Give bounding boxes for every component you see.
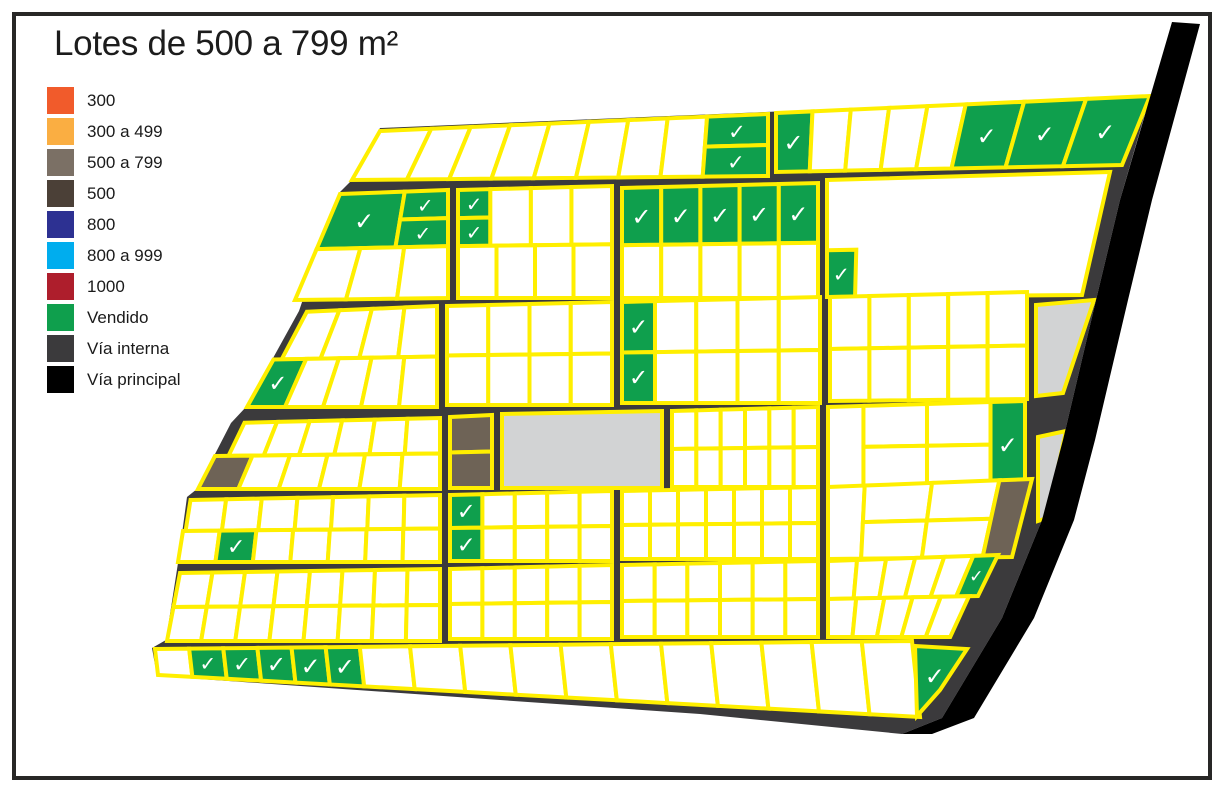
lot (762, 488, 790, 524)
lot (927, 480, 999, 520)
legend: 300300 a 499500 a 799500800800 a 9991000… (47, 87, 181, 397)
lot (574, 244, 613, 298)
sold-check-icon: ✓ (969, 567, 984, 587)
lot (482, 527, 514, 561)
lot (515, 493, 547, 528)
lot (611, 644, 668, 703)
lot (861, 520, 927, 558)
lot (745, 408, 769, 448)
sold-check-icon: ✓ (466, 193, 482, 216)
lot (687, 600, 720, 637)
lot (515, 527, 547, 561)
sold-check-icon: ✓ (267, 653, 286, 679)
lot (769, 408, 793, 448)
sold-check-icon: ✓ (788, 200, 808, 228)
lot (547, 492, 579, 527)
lot (761, 642, 819, 711)
lot (706, 489, 734, 524)
lot (359, 454, 402, 489)
lot (530, 303, 571, 355)
lot (769, 447, 793, 487)
lot (862, 641, 920, 717)
sold-check-icon: ✓ (268, 371, 287, 397)
lot (922, 519, 991, 558)
lot (488, 304, 529, 355)
lot (365, 529, 403, 562)
lot (794, 407, 818, 447)
lot (622, 525, 650, 559)
lot (571, 186, 612, 245)
lot (948, 346, 987, 400)
sold-check-icon: ✓ (301, 652, 321, 680)
legend-color-swatch (47, 118, 74, 145)
lot (571, 354, 612, 406)
legend-color-swatch (47, 304, 74, 331)
lot (753, 599, 786, 637)
lot (269, 606, 306, 641)
lot (331, 496, 369, 529)
legend-label: Vía interna (87, 339, 169, 359)
lot (740, 243, 779, 298)
sold-check-icon: ✓ (632, 203, 652, 231)
lot (696, 299, 737, 351)
lot (510, 645, 566, 698)
lot (404, 495, 440, 529)
lot-500-799 (450, 415, 492, 453)
lot (580, 491, 612, 526)
lot (785, 561, 818, 599)
lot (372, 605, 407, 641)
lot (178, 531, 220, 562)
lot (785, 599, 818, 637)
sold-check-icon: ✓ (335, 653, 355, 681)
lot (547, 526, 579, 561)
legend-label: 500 (87, 184, 115, 204)
lot (497, 245, 536, 298)
lot (561, 644, 617, 700)
lot (687, 563, 720, 600)
lot (622, 245, 661, 298)
lot (531, 187, 572, 245)
lot (720, 562, 753, 600)
lot (661, 643, 718, 706)
lot (482, 493, 514, 527)
lot (571, 302, 612, 354)
sold-check-icon: ✓ (925, 662, 945, 690)
lot (721, 448, 745, 487)
lot (762, 523, 790, 559)
lot (738, 298, 779, 351)
reserved-area (502, 411, 662, 488)
lot (240, 572, 277, 607)
lot (458, 246, 497, 298)
lot (812, 642, 870, 715)
lot (580, 602, 612, 639)
lot (779, 297, 820, 351)
legend-color-swatch (47, 180, 74, 207)
legend-color-swatch (47, 335, 74, 362)
lot (447, 305, 488, 356)
sold-check-icon: ✓ (629, 315, 648, 341)
lot (367, 496, 404, 530)
lot (622, 601, 655, 637)
lot (779, 350, 820, 403)
lot (988, 346, 1027, 400)
lot (530, 354, 571, 405)
lot (745, 448, 769, 487)
sold-check-icon: ✓ (833, 262, 850, 286)
lot (295, 497, 333, 530)
lot (828, 406, 863, 488)
lot (869, 295, 908, 348)
lot (370, 419, 408, 455)
sold-check-icon: ✓ (998, 431, 1018, 459)
legend-color-swatch (47, 211, 74, 238)
lot (407, 569, 440, 605)
legend-label: 300 (87, 91, 115, 111)
sold-check-icon: ✓ (784, 129, 804, 157)
lot (253, 530, 293, 562)
lot (655, 600, 688, 637)
lot (373, 570, 407, 606)
sold-check-icon: ✓ (671, 202, 691, 230)
legend-item: 300 (47, 87, 181, 114)
legend-color-swatch (47, 366, 74, 393)
lot (222, 499, 262, 531)
legend-label: 300 a 499 (87, 122, 163, 142)
legend-label: 800 (87, 215, 115, 235)
lot (655, 300, 696, 352)
lot (403, 529, 440, 563)
lot (406, 605, 440, 641)
lot-map-infographic: ✓✓✓✓✓✓✓✓✓✓✓✓✓✓✓✓✓✓✓✓✓✓✓✓✓✓✓✓✓✓✓ Lotes de… (0, 0, 1224, 792)
lot (650, 490, 678, 525)
legend-item: 1000 (47, 273, 181, 300)
lot (650, 524, 678, 559)
lot (672, 410, 696, 449)
legend-color-swatch (47, 242, 74, 269)
lot (450, 568, 482, 604)
legend-item: Vía interna (47, 335, 181, 362)
lot (307, 571, 343, 607)
lot (655, 564, 688, 601)
legend-label: Vendido (87, 308, 148, 328)
legend-color-swatch (47, 87, 74, 114)
lot (863, 404, 927, 447)
lot (794, 447, 818, 487)
lot (700, 244, 739, 298)
lot (828, 486, 865, 559)
lot (678, 489, 706, 524)
lot (734, 524, 762, 559)
lot (398, 306, 437, 357)
lot (580, 565, 612, 602)
lot (515, 603, 547, 639)
lot (304, 606, 341, 641)
lot (696, 448, 720, 487)
lot (909, 347, 948, 400)
subdivision-map: ✓✓✓✓✓✓✓✓✓✓✓✓✓✓✓✓✓✓✓✓✓✓✓✓✓✓✓✓✓✓✓ (0, 0, 1224, 792)
sold-check-icon: ✓ (233, 652, 251, 677)
lot (360, 646, 415, 689)
sold-check-icon: ✓ (227, 534, 246, 560)
lot (863, 483, 932, 522)
lot (399, 357, 437, 408)
legend-item: Vía principal (47, 366, 181, 393)
lot (706, 524, 734, 559)
lot (622, 490, 650, 525)
lot (721, 409, 745, 448)
legend-item: 800 a 999 (47, 242, 181, 269)
lot (405, 418, 440, 454)
lot (580, 526, 612, 561)
lot (720, 600, 753, 637)
lot (696, 410, 720, 449)
lot (753, 562, 786, 600)
lot (779, 243, 818, 298)
lot (460, 645, 516, 694)
sold-check-icon: ✓ (749, 201, 769, 229)
lot (988, 292, 1027, 346)
sold-check-icon: ✓ (457, 532, 476, 558)
lot (622, 564, 655, 601)
lot (410, 646, 465, 692)
legend-label: Vía principal (87, 370, 181, 390)
sold-check-icon: ✓ (354, 208, 374, 236)
sold-check-icon: ✓ (727, 150, 745, 175)
lot (790, 523, 818, 559)
page-title: Lotes de 500 a 799 m² (54, 24, 398, 64)
lot (290, 530, 330, 562)
lot (328, 529, 367, 562)
sold-check-icon: ✓ (200, 653, 217, 676)
legend-item: 500 (47, 180, 181, 207)
lot (490, 188, 531, 246)
sold-check-icon: ✓ (629, 366, 648, 392)
legend-item: 300 a 499 (47, 118, 181, 145)
sold-check-icon: ✓ (457, 499, 476, 525)
sold-check-icon: ✓ (1095, 119, 1115, 147)
lot (273, 571, 310, 606)
sold-check-icon: ✓ (466, 221, 482, 244)
lot (678, 524, 706, 559)
lot (830, 348, 869, 401)
lot (909, 294, 948, 348)
lot (535, 245, 574, 298)
lot (738, 351, 779, 403)
lot (319, 454, 365, 489)
lot (869, 348, 908, 401)
sold-check-icon: ✓ (417, 194, 434, 217)
legend-color-swatch (47, 273, 74, 300)
lot (547, 602, 579, 639)
lot (155, 649, 192, 677)
lot (258, 498, 297, 530)
lot (397, 246, 448, 299)
lot (400, 454, 440, 490)
lot (338, 606, 374, 642)
lot (790, 487, 818, 523)
lot (660, 117, 707, 177)
legend-item: 500 a 799 (47, 149, 181, 176)
lot (655, 352, 696, 403)
lot (696, 351, 737, 403)
lot (340, 570, 375, 606)
lot (948, 293, 987, 347)
lot (186, 499, 227, 531)
lot (447, 355, 488, 405)
lot (482, 567, 514, 603)
lot (927, 402, 991, 446)
lot (547, 566, 579, 603)
sold-check-icon: ✓ (977, 122, 997, 150)
lot (515, 567, 547, 604)
lot (482, 603, 514, 639)
sold-check-icon: ✓ (415, 222, 432, 245)
legend-label: 1000 (87, 277, 125, 297)
sold-check-icon: ✓ (728, 119, 746, 144)
lot (450, 604, 482, 639)
legend-color-swatch (47, 149, 74, 176)
lot (235, 606, 273, 641)
legend-label: 800 a 999 (87, 246, 163, 266)
legend-label: 500 a 799 (87, 153, 163, 173)
lot (827, 172, 1110, 297)
sold-check-icon: ✓ (710, 202, 730, 230)
lot (734, 488, 762, 524)
lot (711, 643, 768, 709)
lot (830, 296, 869, 349)
sold-check-icon: ✓ (1035, 121, 1055, 149)
lot-500-799 (450, 452, 492, 489)
legend-item: Vendido (47, 304, 181, 331)
legend-item: 800 (47, 211, 181, 238)
lot (661, 244, 700, 298)
lot (672, 449, 696, 487)
lot (488, 355, 529, 406)
